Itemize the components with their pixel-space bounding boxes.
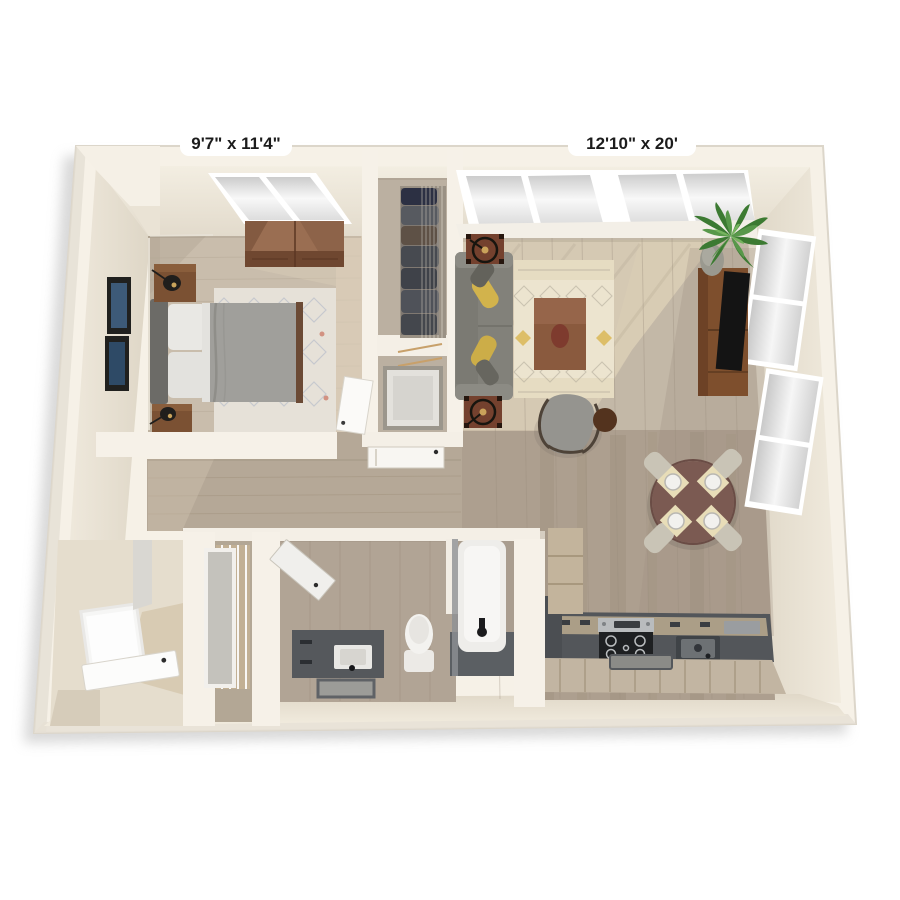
svg-text:9'7" x 11'4": 9'7" x 11'4": [191, 134, 280, 153]
svg-text:12'10" x 20': 12'10" x 20': [586, 134, 678, 153]
